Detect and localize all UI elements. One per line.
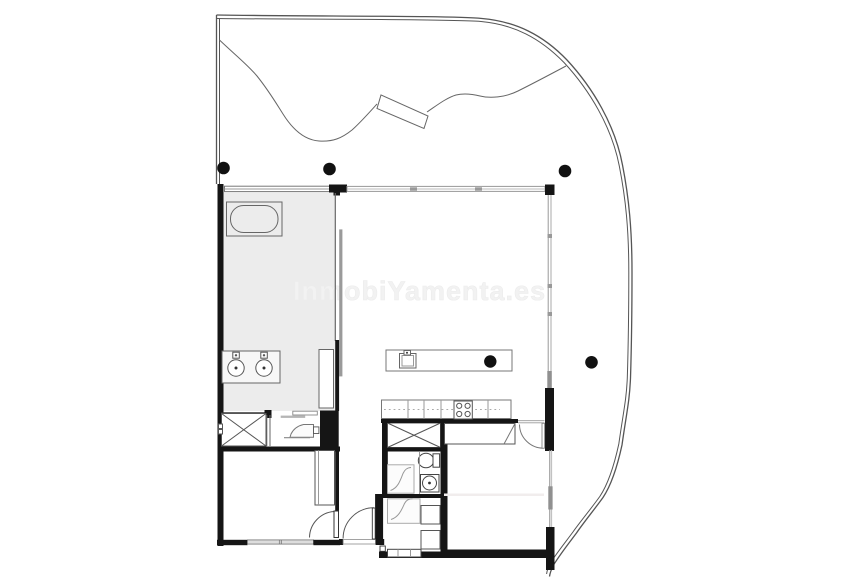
svg-text:InmobiYamenta.es: InmobiYamenta.es — [293, 276, 546, 306]
